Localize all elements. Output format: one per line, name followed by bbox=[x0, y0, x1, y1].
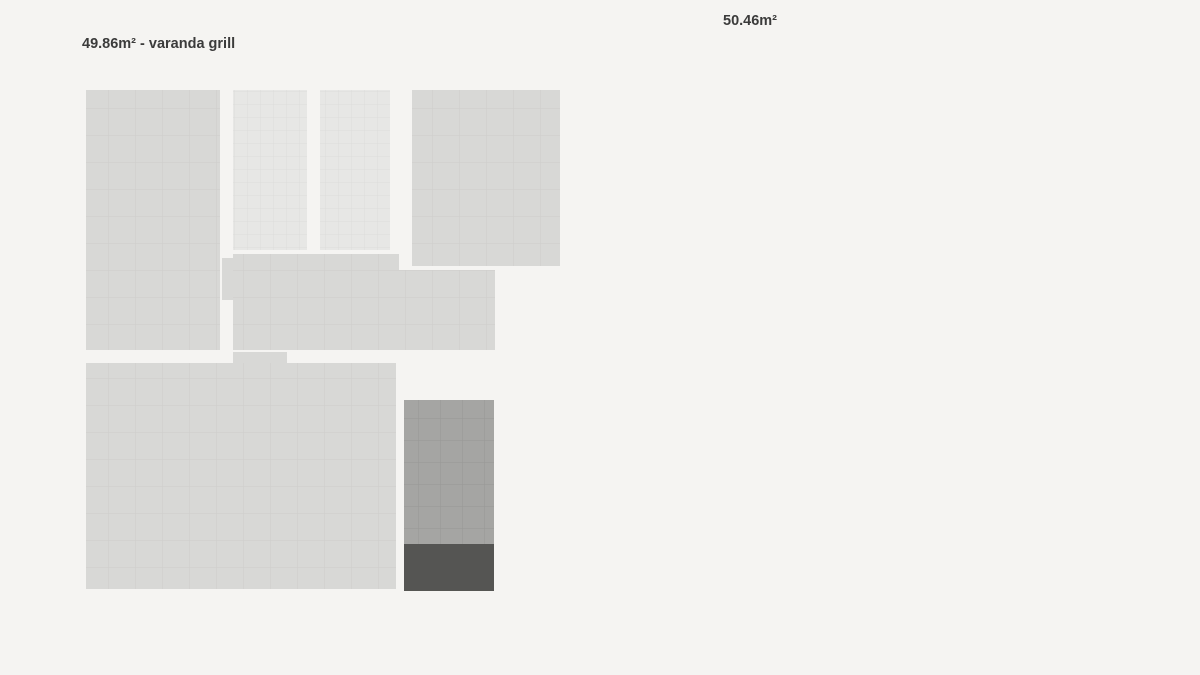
svg-text:50.46m²: 50.46m² bbox=[723, 13, 777, 29]
svg-text:49.86m² - varanda grill: 49.86m² - varanda grill bbox=[82, 36, 235, 52]
